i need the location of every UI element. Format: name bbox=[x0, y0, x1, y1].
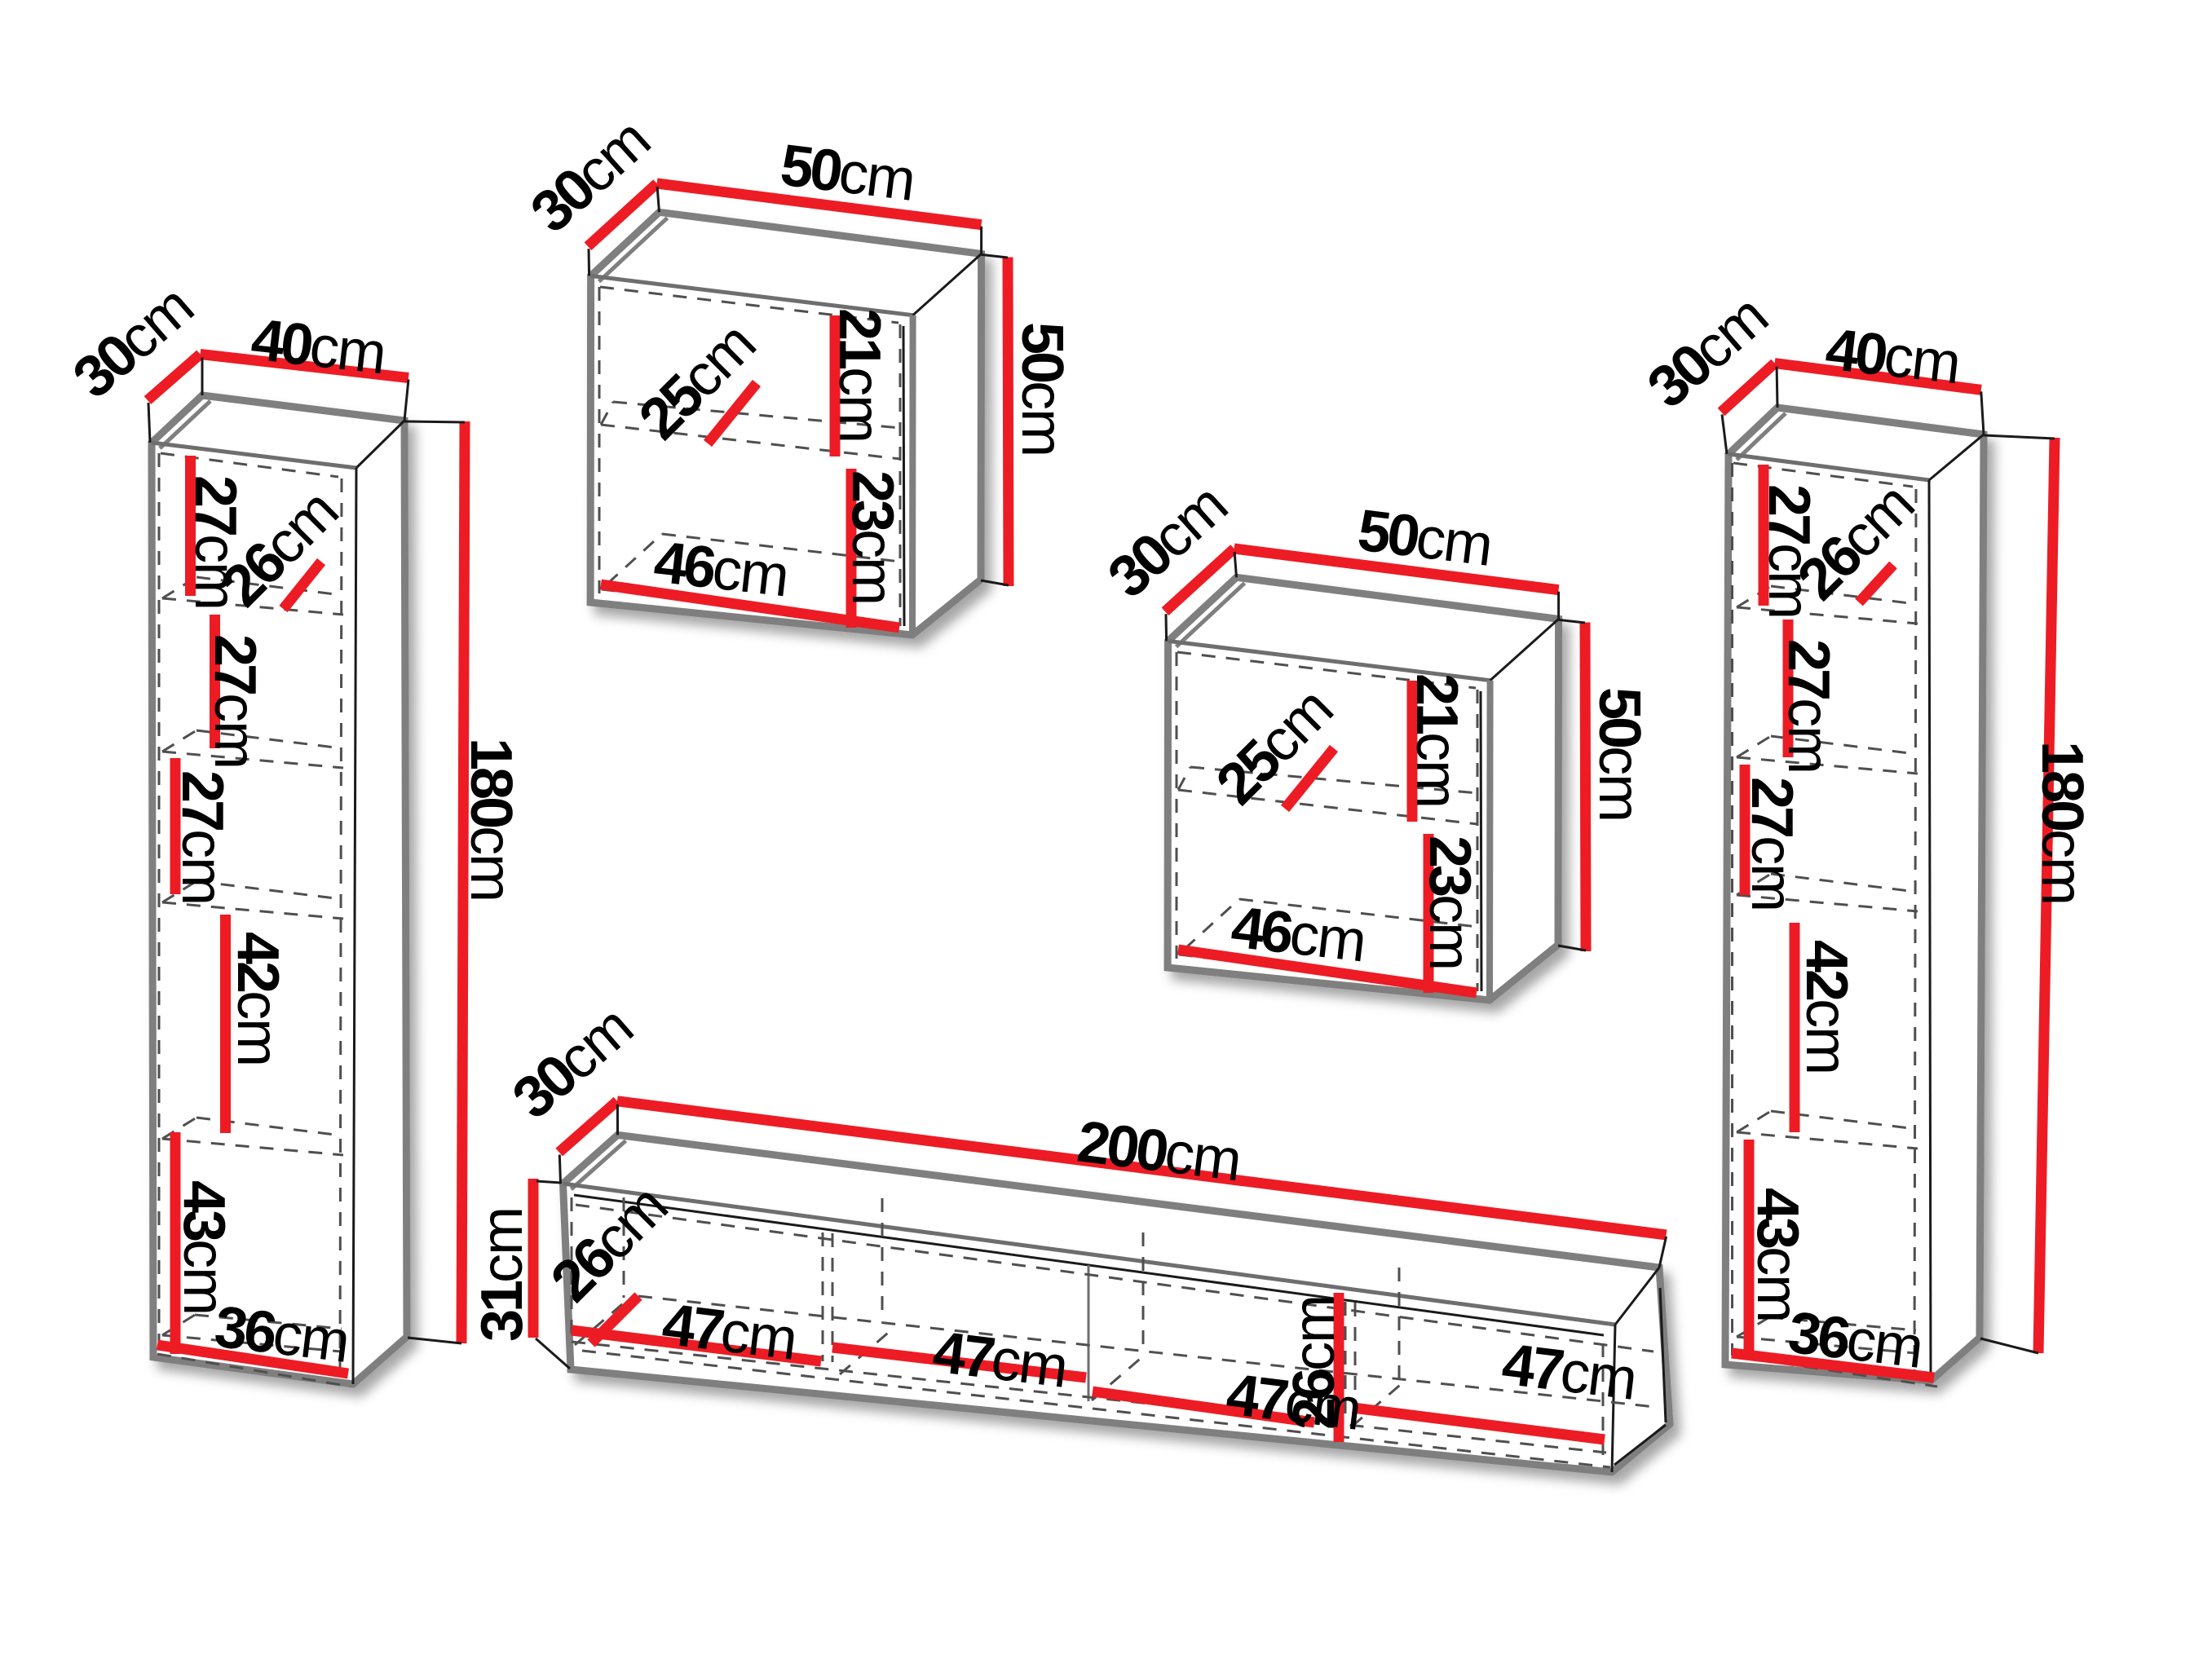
svg-text:180cm: 180cm bbox=[458, 738, 523, 901]
svg-text:21cm: 21cm bbox=[1404, 673, 1469, 807]
svg-text:50cm: 50cm bbox=[1009, 322, 1075, 456]
svg-text:43cm: 43cm bbox=[171, 1180, 236, 1314]
svg-text:180cm: 180cm bbox=[2029, 741, 2095, 904]
svg-text:26cm: 26cm bbox=[1282, 1296, 1347, 1430]
svg-text:31cm: 31cm bbox=[470, 1208, 535, 1342]
svg-text:50cm: 50cm bbox=[1587, 687, 1652, 821]
svg-text:21cm: 21cm bbox=[827, 308, 892, 442]
svg-text:23cm: 23cm bbox=[840, 470, 905, 604]
svg-text:42cm: 42cm bbox=[225, 932, 290, 1065]
svg-text:27cm: 27cm bbox=[202, 634, 267, 768]
svg-text:27cm: 27cm bbox=[1739, 777, 1804, 911]
svg-text:27cm: 27cm bbox=[170, 770, 235, 904]
svg-text:23cm: 23cm bbox=[1417, 836, 1482, 969]
svg-text:42cm: 42cm bbox=[1794, 940, 1859, 1074]
svg-text:27cm: 27cm bbox=[1776, 639, 1841, 773]
